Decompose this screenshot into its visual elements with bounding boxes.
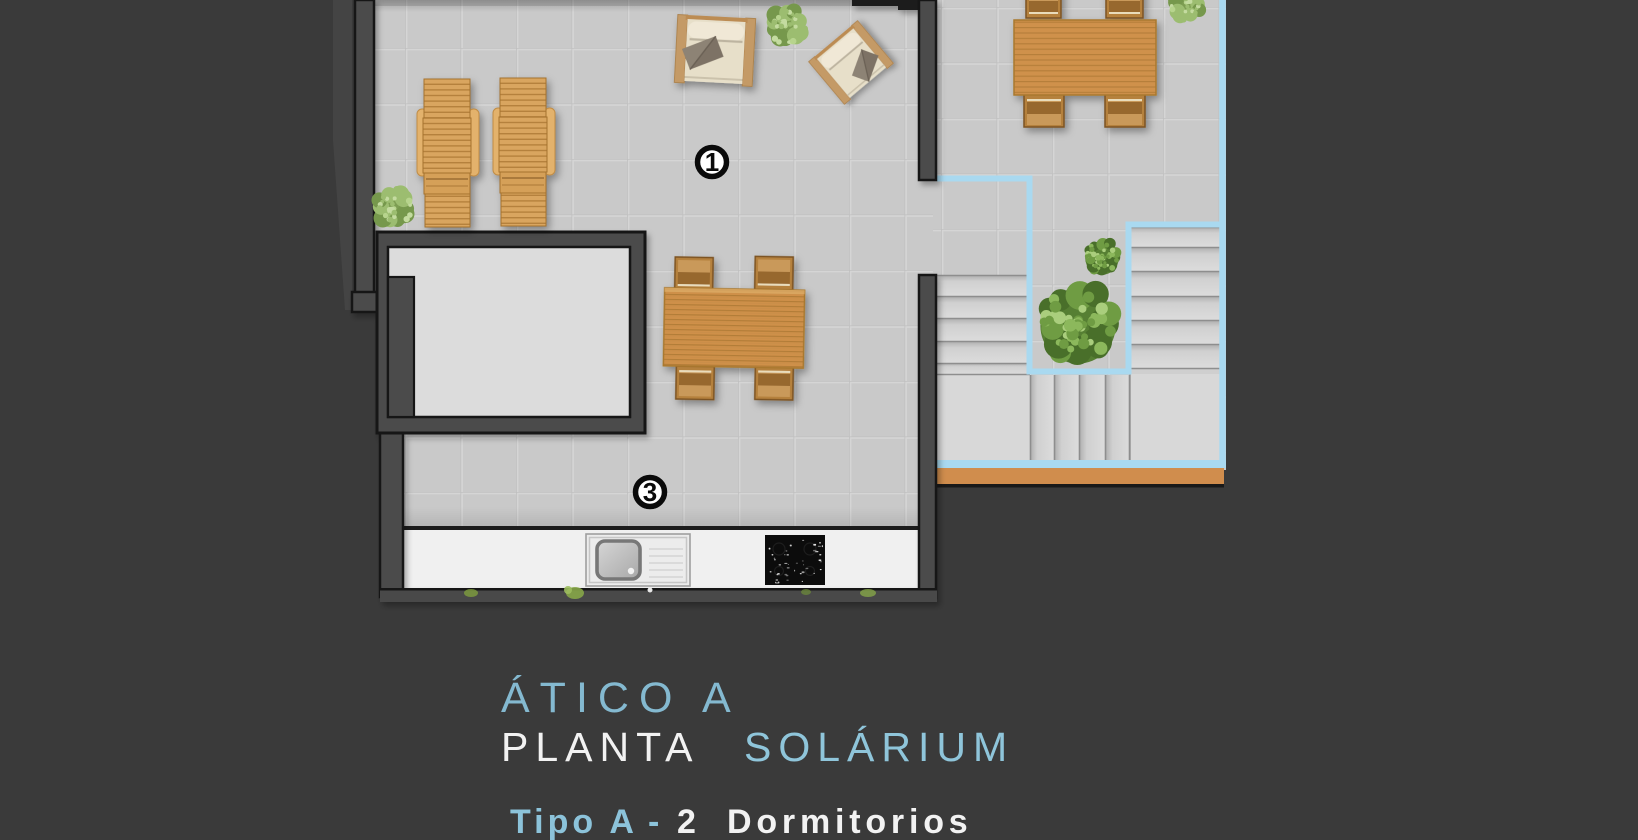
svg-text:PLANTASOLÁRIUM: PLANTASOLÁRIUM [501,724,1014,770]
svg-text:Tipo A-2Dormitorios: Tipo A-2Dormitorios [510,803,972,840]
svg-text:ÁTICO A: ÁTICO A [501,674,741,722]
svg-text:3: 3 [643,477,657,507]
svg-text:1: 1 [705,147,719,177]
